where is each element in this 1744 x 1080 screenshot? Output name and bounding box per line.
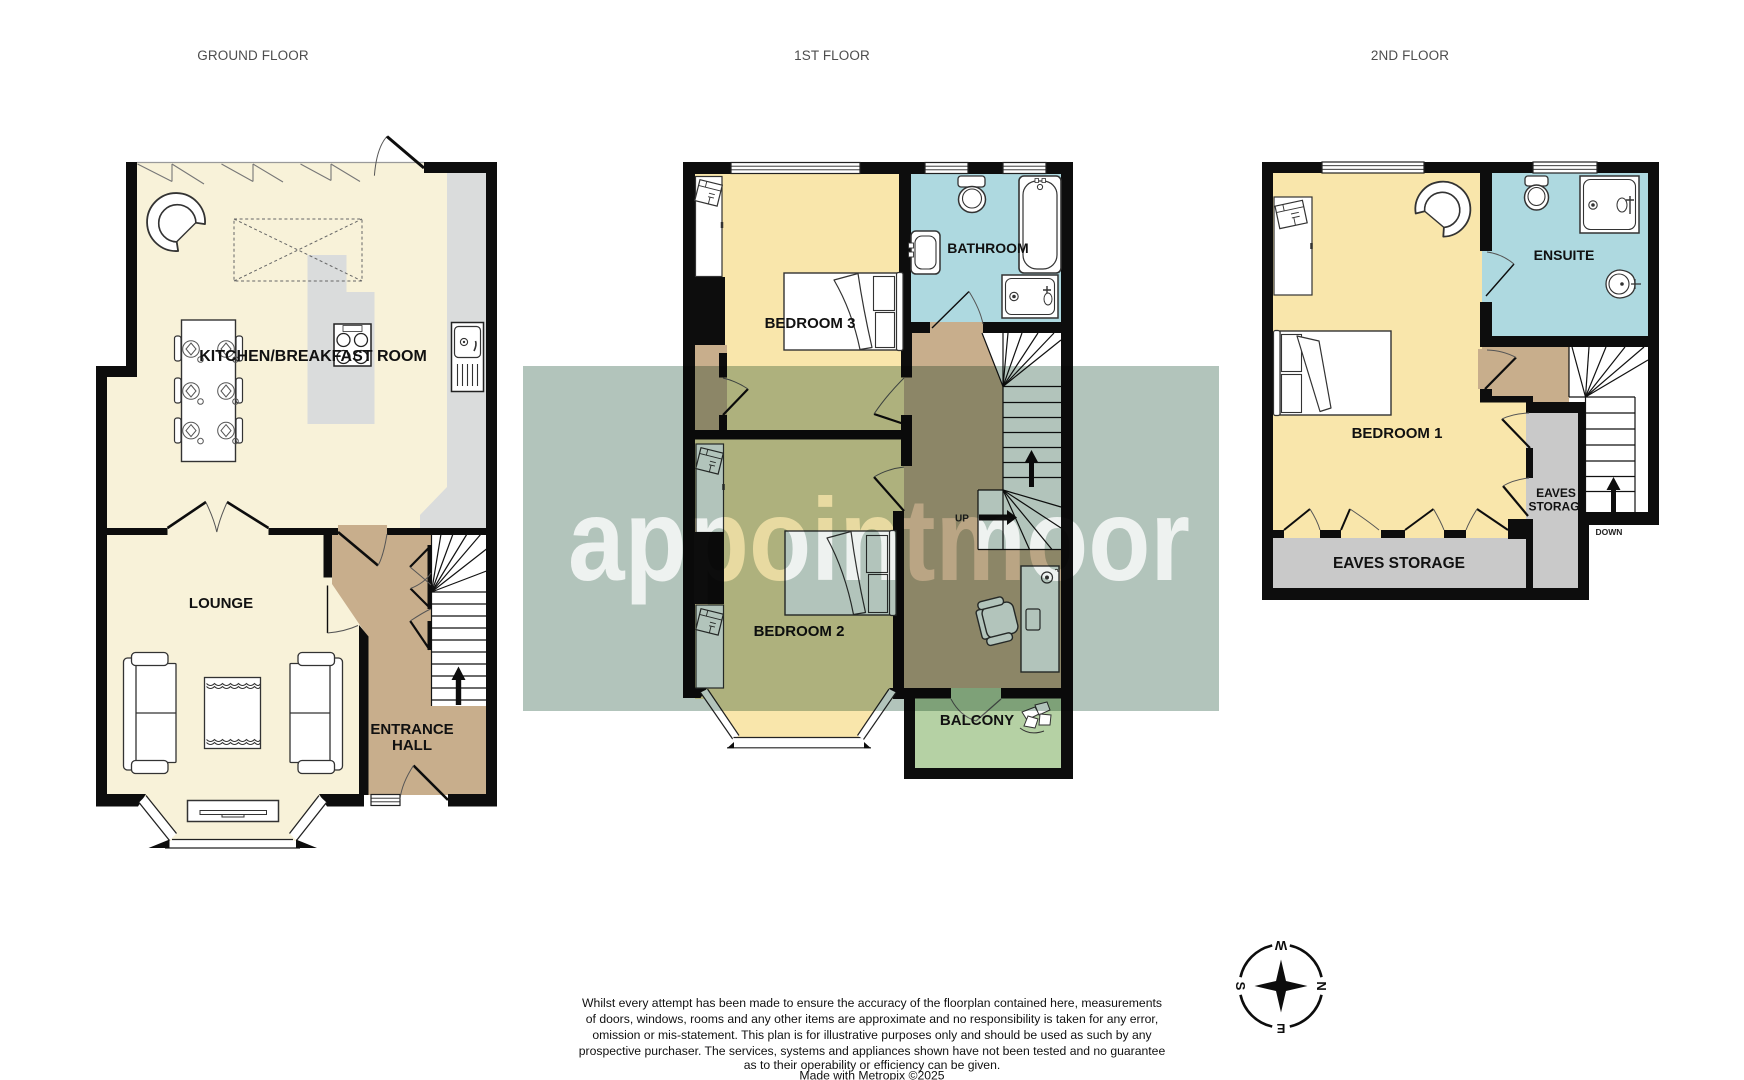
svg-text:EAVES STORAGE: EAVES STORAGE <box>1333 555 1465 572</box>
svg-text:E: E <box>1276 1021 1285 1036</box>
svg-text:KITCHEN/BREAKFAST ROOM: KITCHEN/BREAKFAST ROOM <box>199 348 427 365</box>
svg-text:prospective purchaser. The ser: prospective purchaser. The services, sys… <box>579 1044 1166 1058</box>
svg-text:2ND FLOOR: 2ND FLOOR <box>1371 48 1449 63</box>
svg-text:W: W <box>1274 938 1287 953</box>
svg-text:ENSUITE: ENSUITE <box>1534 247 1595 263</box>
svg-text:BALCONY: BALCONY <box>940 712 1014 729</box>
svg-text:BEDROOM 1: BEDROOM 1 <box>1352 425 1443 442</box>
svg-text:omission or mis-statement. Thi: omission or mis-statement. This plan is … <box>592 1028 1152 1042</box>
svg-text:BEDROOM 3: BEDROOM 3 <box>765 315 856 332</box>
svg-text:BATHROOM: BATHROOM <box>947 240 1028 256</box>
svg-text:of doors, windows, rooms and a: of doors, windows, rooms and any other i… <box>586 1012 1158 1026</box>
svg-text:appointmoor: appointmoor <box>568 474 1190 605</box>
svg-text:S: S <box>1233 982 1248 991</box>
svg-text:DOWN: DOWN <box>1596 527 1623 537</box>
svg-text:Made with Metropix ©2025: Made with Metropix ©2025 <box>799 1069 944 1080</box>
svg-text:HALL: HALL <box>392 737 432 754</box>
svg-text:LOUNGE: LOUNGE <box>189 595 253 612</box>
svg-text:1ST FLOOR: 1ST FLOOR <box>794 48 870 63</box>
svg-text:EAVES: EAVES <box>1536 486 1576 500</box>
svg-text:Whilst every attempt has been: Whilst every attempt has been made to en… <box>582 996 1162 1010</box>
svg-text:STORAG: STORAG <box>1528 500 1579 514</box>
svg-text:N: N <box>1314 981 1329 990</box>
svg-text:GROUND FLOOR: GROUND FLOOR <box>197 48 309 63</box>
svg-text:ENTRANCE: ENTRANCE <box>370 721 453 738</box>
